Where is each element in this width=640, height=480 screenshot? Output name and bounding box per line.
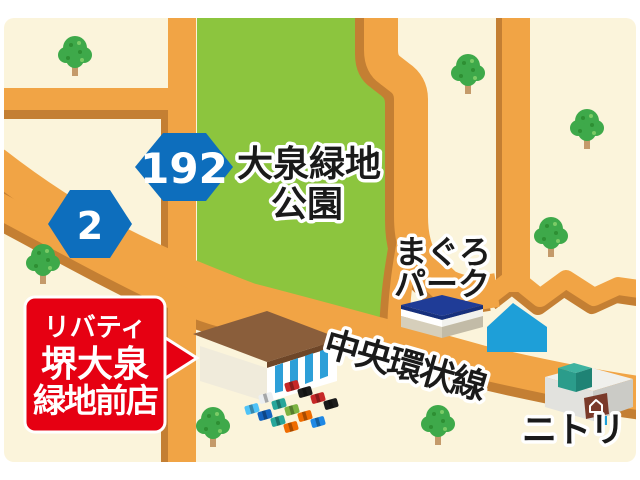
route-192-number: 192 — [140, 144, 228, 193]
park-label-line2: 公園 — [271, 184, 343, 225]
route-2-number: 2 — [77, 204, 103, 248]
park-label-line1: 大泉緑地 — [237, 144, 381, 185]
store-callout-line3: 緑地前店 — [33, 381, 158, 420]
nitori-sign-cube — [558, 363, 592, 392]
nitori-label: ニトリ — [522, 411, 624, 451]
route-shield-192: 192 — [135, 133, 233, 201]
maguro-park-label-line2: パーク — [394, 265, 490, 303]
map-canvas: 192 2 大泉緑地 公園 — [0, 0, 640, 480]
store-callout-line1: リバティ — [44, 313, 146, 343]
store-callout-line2: 堺大泉 — [41, 344, 149, 385]
store-access-map: 192 2 大泉緑地 公園 — [0, 0, 640, 480]
